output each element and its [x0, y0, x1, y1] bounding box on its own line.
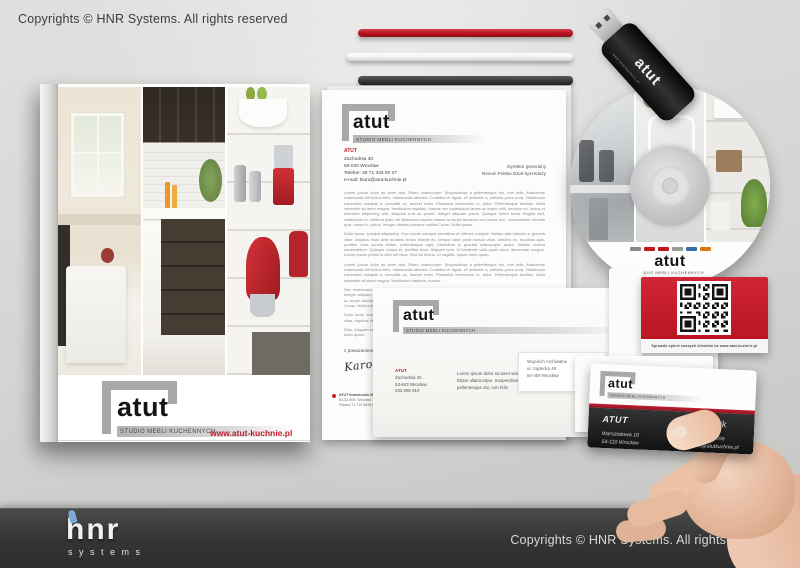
- photo-detail: [143, 87, 226, 142]
- card-address: Warsztatowa 10 54-110 Wrocław: [601, 431, 639, 448]
- photo-detail: [172, 185, 177, 208]
- photo-detail: [716, 150, 742, 172]
- photo-detail: [143, 208, 226, 220]
- hnr-logo-subtext: systems: [68, 547, 147, 557]
- brochure-spine: [40, 84, 58, 442]
- qr-card: Sprawdź opinie naszych klientów na www.a…: [641, 277, 768, 353]
- brochure-cover: atut STUDIO MEBLI KUCHENNYCH www.atut-ku…: [40, 84, 310, 442]
- partner-logo-chip: [700, 247, 711, 251]
- atut-logo-tagline: STUDIO MEBLI KUCHENNYCH: [570, 271, 770, 275]
- photo-detail: [199, 159, 222, 202]
- atut-logo-word: atut: [353, 113, 390, 132]
- photo-detail: [161, 219, 225, 334]
- photo-detail: [101, 248, 114, 262]
- atut-logo-tagline: STUDIO MEBLI KUCHENNYCH: [403, 328, 475, 333]
- disc-photo-shelves: [706, 86, 770, 246]
- photo-detail: [234, 165, 246, 202]
- photo-detail: [714, 99, 746, 118]
- letter-closing: z poważaniem: [344, 348, 373, 353]
- atut-logo-tagline: STUDIO MEBLI KUCHENNYCH: [607, 393, 665, 400]
- address-line: Zachodnia 20: [395, 375, 422, 380]
- letter-paragraph: Lorem ipsum dolor sit amet wisi. Etiam u…: [344, 262, 545, 283]
- letter-paragraph: Dolor lacus, suscipit adipiscing. Cum so…: [344, 231, 545, 258]
- red-dot-icon: [332, 394, 336, 398]
- address-line: 50-040 Wrocław: [344, 164, 379, 169]
- address-line: 53-643 Wrocław: [395, 382, 427, 387]
- photo-detail: [165, 182, 170, 208]
- top-copyright-text: Copyrights © HNR Systems. All rights res…: [18, 12, 288, 26]
- red-pen: [358, 29, 573, 37]
- cover-photo-collage: [58, 87, 310, 375]
- atut-logo-word: atut: [570, 254, 770, 270]
- atut-logo-word: atut: [117, 394, 169, 421]
- atut-logo-tagline: STUDIO MEBLI KUCHENNYCH: [117, 429, 216, 435]
- brochure-website: www.atut-kuchnie.pl: [210, 428, 292, 438]
- photo-detail: [289, 231, 309, 277]
- cover-photo-dark-kitchen: [143, 87, 226, 375]
- photo-detail: [273, 168, 294, 205]
- mockup-canvas: Copyrights © HNR Systems. All rights res…: [0, 0, 800, 568]
- atut-logo-bar: STUDIO MEBLI KUCHENNYCH: [607, 392, 703, 402]
- disc-hub-inner: [650, 166, 690, 206]
- qr-caption-strip: Sprawdź opinie naszych klientów na www.a…: [641, 339, 768, 353]
- disc-hub: [630, 146, 710, 226]
- company-address-block: ATUT Zachodnia 30 50-040 Wrocław Telefon…: [344, 148, 406, 184]
- photo-detail: [252, 332, 310, 375]
- photo-detail: [711, 201, 730, 230]
- photo-detail: [579, 140, 594, 182]
- disc-photo-steel-kitchen: [570, 86, 634, 246]
- footer-line: ATUT Inwestorów 98: [339, 393, 374, 397]
- photo-detail: [249, 171, 261, 203]
- photo-detail: [143, 338, 226, 375]
- photo-detail: [58, 214, 141, 226]
- photo-detail: [66, 266, 126, 364]
- hnr-logo-word: hnr: [66, 515, 147, 545]
- card-stack-edge: [609, 268, 643, 362]
- dark-pen: [358, 76, 573, 85]
- partner-logo-chip: [644, 247, 655, 251]
- address-line: 54-110 Wrocław: [601, 439, 638, 447]
- atut-logo-bar: STUDIO MEBLI KUCHENNYCH: [403, 327, 628, 334]
- brochure-front: atut STUDIO MEBLI KUCHENNYCH www.atut-ku…: [58, 84, 310, 442]
- recipient-line: Dyrektor generalny: [507, 164, 546, 169]
- usb-brand-label: atut: [631, 55, 665, 90]
- disc-center-hole: [662, 178, 678, 194]
- address-line: Warsztatowa 10: [602, 431, 639, 439]
- recipient-line: Wojciech Archiwalne: [527, 359, 567, 364]
- envelope-sender-block: ATUT Zachodnia 20 53-643 Wrocław 033 896…: [395, 368, 427, 395]
- cover-photo-white-kitchen: [58, 87, 141, 375]
- white-pen: [347, 53, 573, 61]
- recipient-line: Novum Polska Dział Sprzedaży: [482, 171, 546, 176]
- photo-detail: [589, 198, 608, 240]
- partner-logo-chip: [630, 247, 641, 251]
- recipient-line: 50-409 Wrocław: [527, 373, 559, 378]
- cover-photo-red-appliances: [227, 87, 310, 375]
- brochure-title-band: atut STUDIO MEBLI KUCHENNYCH www.atut-ku…: [58, 375, 310, 439]
- photo-detail: [250, 294, 275, 317]
- partner-logo-chip: [672, 247, 683, 251]
- atut-logo-word: atut: [403, 308, 434, 324]
- note-line: Lorem ipsum dolor sit amet wisi.: [457, 371, 520, 376]
- note-line: Etiam ullamcorper. Suspendisse: [457, 378, 520, 383]
- photo-detail: [599, 150, 613, 182]
- atut-logo-word: atut: [608, 377, 633, 391]
- address-line: Telefon: 48 71 333 00 27: [344, 171, 397, 176]
- photo-detail: [239, 99, 287, 128]
- page-edges: [58, 439, 310, 442]
- atut-logo-tagline: STUDIO MEBLI KUCHENNYCH: [353, 137, 431, 142]
- footer-line: 54-33-509, Wrocław: [339, 398, 371, 402]
- partner-logo-chip: [658, 247, 669, 251]
- partner-logos: [570, 247, 770, 251]
- hnr-systems-logo: hnr systems: [66, 515, 147, 557]
- letter-paragraph: Lorem ipsum dolor sit amet wisi. Etiam u…: [344, 190, 545, 227]
- atut-logo-bar: STUDIO MEBLI KUCHENNYCH: [353, 135, 485, 143]
- note-line: pellentesque dui, non felis: [457, 385, 508, 390]
- company-name: ATUT: [344, 148, 357, 154]
- card-company: ATUT: [602, 414, 628, 425]
- envelope-note: Lorem ipsum dolor sit amet wisi. Etiam u…: [457, 370, 520, 391]
- photo-detail: [274, 145, 294, 168]
- recipient-line: ul. Sądecka 48: [527, 366, 556, 371]
- photo-detail: [246, 237, 281, 300]
- address-line: e-mail: biuro@atut-kuchnie.pl: [344, 178, 406, 183]
- qr-caption: Sprawdź opinie naszych klientów na www.a…: [651, 344, 757, 348]
- recipient-block: Dyrektor generalny Novum Polska Dział Sp…: [482, 164, 546, 178]
- partner-logo-chip: [686, 247, 697, 251]
- address-line: Zachodnia 30: [344, 157, 373, 162]
- footer-bar: hnr systems Copyrights © HNR Systems. Al…: [0, 508, 800, 568]
- qr-code: [677, 281, 731, 335]
- company-name: ATUT: [395, 368, 407, 373]
- photo-detail: [570, 185, 634, 193]
- photo-detail: [741, 179, 767, 227]
- window-shape: [71, 113, 123, 197]
- address-line: 033 896 910: [395, 388, 419, 393]
